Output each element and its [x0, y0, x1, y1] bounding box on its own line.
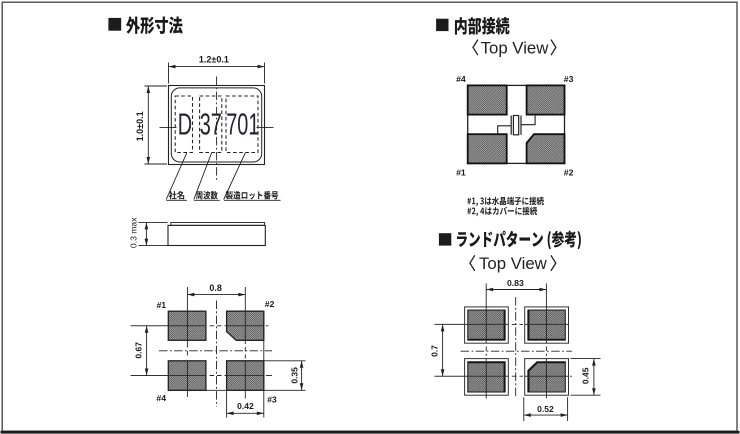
- svg-text:0.52: 0.52: [537, 404, 554, 414]
- svg-text:#3: #3: [564, 74, 574, 84]
- svg-text:0.7: 0.7: [430, 345, 440, 357]
- svg-text:#1: #1: [456, 168, 466, 178]
- svg-text:#2: #2: [564, 168, 574, 178]
- svg-text:Top View: Top View: [479, 254, 548, 273]
- svg-text:0.8: 0.8: [209, 283, 222, 293]
- svg-text:1.2±0.1: 1.2±0.1: [199, 55, 229, 65]
- svg-text:0.83: 0.83: [507, 278, 524, 288]
- svg-text:0.67: 0.67: [133, 342, 143, 359]
- svg-text:0.3 max: 0.3 max: [129, 217, 139, 248]
- svg-text:Top View: Top View: [481, 38, 550, 57]
- svg-text:#4: #4: [156, 393, 166, 403]
- svg-text:0.35: 0.35: [289, 367, 299, 384]
- svg-text:701: 701: [226, 108, 259, 141]
- svg-text:#3: #3: [267, 395, 277, 405]
- svg-text:#1: #1: [156, 300, 166, 310]
- svg-text:37: 37: [200, 108, 222, 141]
- svg-text:0.45: 0.45: [580, 367, 590, 384]
- svg-text:1.0±0.1: 1.0±0.1: [135, 111, 145, 141]
- svg-text:D: D: [178, 108, 192, 141]
- svg-text:#2: #2: [265, 299, 275, 309]
- svg-text:0.42: 0.42: [237, 401, 254, 411]
- svg-text:#4: #4: [456, 74, 466, 84]
